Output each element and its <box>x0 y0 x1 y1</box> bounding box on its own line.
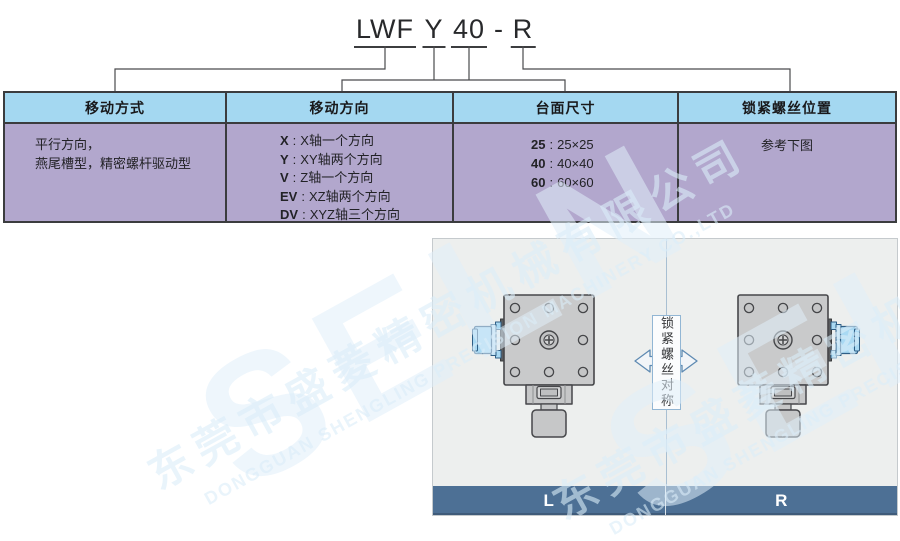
option-code: EV <box>280 189 297 204</box>
code-connector-lines <box>0 0 900 92</box>
size-option: 60:60×60 <box>531 173 673 192</box>
cell-lock-screw-position: 参考下图 <box>679 124 895 221</box>
option-separator: : <box>301 189 305 204</box>
option-desc: 25×25 <box>557 137 594 152</box>
option-separator: : <box>549 156 553 171</box>
option-code: V <box>280 170 289 185</box>
option-separator: : <box>293 133 297 148</box>
option-desc: XZ轴两个方向 <box>309 189 391 204</box>
stage-drawing-left-variant <box>470 289 600 439</box>
column-header-table-size: 台面尺寸 <box>454 93 679 124</box>
variant-label-right: R <box>665 486 898 515</box>
variant-label-bar: L R <box>433 486 897 515</box>
option-desc: Z轴一个方向 <box>300 170 373 185</box>
option-code: 60 <box>531 175 545 190</box>
spec-table: 移动方式 移动方向 台面尺寸 锁紧螺丝位置 平行方向， 燕尾槽型，精密螺杆驱动型… <box>3 91 897 223</box>
option-desc: 60×60 <box>557 175 594 190</box>
arrow-label-box: 锁紧螺丝对称 <box>652 315 681 410</box>
option-code: DV <box>280 207 298 222</box>
column-header-lock-screw-position: 锁紧螺丝位置 <box>679 93 895 124</box>
option-code: 40 <box>531 156 545 171</box>
option-desc: XYZ轴三个方向 <box>310 207 400 222</box>
option-desc: X轴一个方向 <box>300 133 374 148</box>
size-option: 25:25×25 <box>531 135 673 154</box>
option-separator: : <box>293 152 297 167</box>
option-separator: : <box>549 175 553 190</box>
arrow-label: 锁紧螺丝对称 <box>660 316 673 409</box>
size-option: 40:40×40 <box>531 154 673 173</box>
column-header-movement-type: 移动方式 <box>5 93 227 124</box>
stage-drawing-right-variant <box>732 289 862 439</box>
cell-movement-type: 平行方向， 燕尾槽型，精密螺杆驱动型 <box>5 124 227 221</box>
direction-option: Y:XY轴两个方向 <box>280 151 448 170</box>
option-code: Y <box>280 152 289 167</box>
direction-option: EV:XZ轴两个方向 <box>280 188 448 207</box>
direction-option: V:Z轴一个方向 <box>280 169 448 188</box>
option-separator: : <box>293 170 297 185</box>
option-desc: XY轴两个方向 <box>300 152 382 167</box>
variant-label-left: L <box>433 486 665 515</box>
option-code: 25 <box>531 137 545 152</box>
cell-movement-direction: X:X轴一个方向 Y:XY轴两个方向 V:Z轴一个方向 EV:XZ轴两个方向 D… <box>227 124 454 221</box>
lock-screw-figure-panel: 锁紧螺丝对称 L R <box>432 238 898 516</box>
lock-position-note: 参考下图 <box>679 135 895 154</box>
movement-type-line: 平行方向， <box>35 135 217 154</box>
direction-option: X:X轴一个方向 <box>280 132 448 151</box>
movement-type-line: 燕尾槽型，精密螺杆驱动型 <box>35 154 217 173</box>
column-header-movement-direction: 移动方向 <box>227 93 454 124</box>
option-desc: 40×40 <box>557 156 594 171</box>
option-separator: : <box>302 207 306 222</box>
direction-option: DV:XYZ轴三个方向 <box>280 206 448 225</box>
option-code: X <box>280 133 289 148</box>
cell-table-size: 25:25×25 40:40×40 60:60×60 <box>454 124 679 221</box>
datasheet-page: LWF Y 40 - R 移动方式 移动方向 台面尺寸 锁紧螺丝位置 平行方向，… <box>0 0 900 541</box>
option-separator: : <box>549 137 553 152</box>
